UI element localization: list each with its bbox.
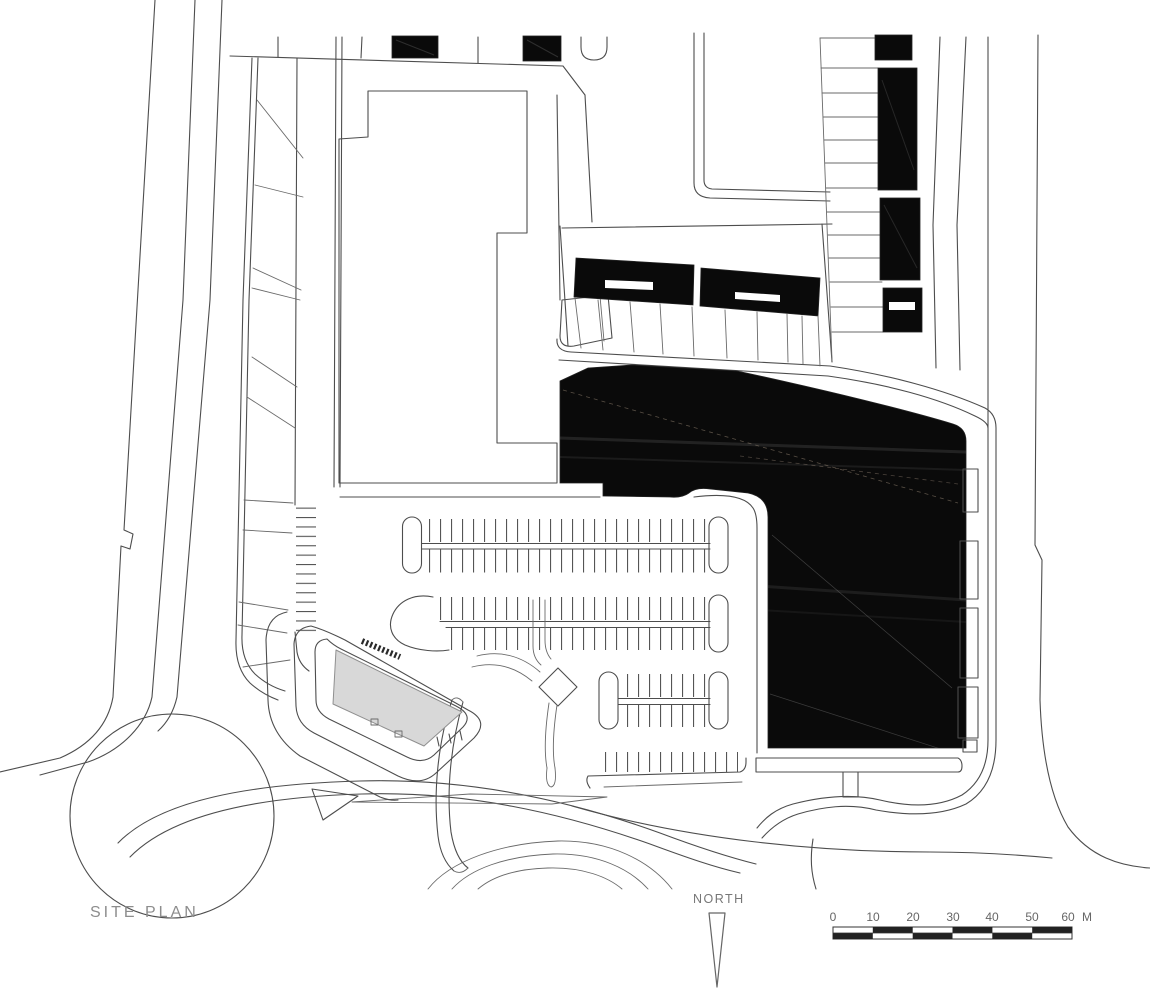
large-building-outline	[339, 91, 557, 483]
drawing-title: SITE PLAN	[90, 904, 199, 921]
north-arrow-icon	[709, 913, 725, 987]
main-building	[560, 365, 978, 797]
site-plan-sheet: SITE PLAN NORTH 0 10 20 30 40 50 60 M	[0, 0, 1150, 1000]
scale-bar-segment	[1032, 927, 1072, 933]
scale-bar-segment	[873, 927, 913, 933]
road-edge	[957, 37, 966, 370]
road-edge	[694, 33, 830, 201]
road-edge	[334, 37, 336, 487]
rowhouse-block	[880, 198, 920, 280]
parking-row	[403, 517, 729, 573]
road-edge	[158, 0, 222, 731]
scale-bar-segments	[833, 927, 1072, 939]
scale-tick-label: 40	[985, 910, 999, 924]
site-plan-drawing: SITE PLAN NORTH 0 10 20 30 40 50 60 M	[0, 0, 1150, 1000]
street-edge-buildings	[392, 36, 561, 61]
landscape-contour	[478, 868, 622, 889]
road-edge	[0, 0, 155, 772]
road-edge	[340, 37, 342, 487]
parallel-parking-stalls	[296, 506, 316, 632]
service-apron	[756, 758, 962, 797]
road-edge	[933, 37, 940, 368]
kiosk-diamond	[539, 668, 577, 706]
traffic-island	[312, 789, 358, 820]
scale-bar: 0 10 20 30 40 50 60 M	[830, 910, 1092, 939]
entrance-canopy	[362, 641, 400, 657]
scale-bar-segment	[833, 933, 873, 939]
scale-bar-segment	[913, 933, 953, 939]
parking-row	[587, 752, 746, 788]
parcel-boundary	[562, 224, 832, 228]
parcel-boundary	[557, 95, 560, 300]
parking-row	[599, 672, 728, 729]
landscape-contour	[452, 854, 648, 889]
terrace-block	[700, 268, 820, 316]
road-edge	[130, 794, 740, 873]
road-edge	[811, 839, 816, 889]
scale-unit-label: M	[1082, 910, 1092, 924]
median-sliver	[352, 794, 607, 804]
rowhouse-courtyard	[889, 302, 915, 310]
scale-tick-label: 30	[946, 910, 960, 924]
road-edge	[40, 0, 195, 775]
scale-bar-segment	[992, 933, 1032, 939]
parcel-boundary	[560, 226, 568, 346]
scale-tick-label: 10	[866, 910, 880, 924]
scale-tick-label: 60	[1061, 910, 1075, 924]
north-arrow: NORTH	[693, 892, 745, 987]
scale-tick-label: 20	[906, 910, 920, 924]
parcel-boundary	[230, 56, 585, 95]
parcel-boundary	[822, 224, 832, 362]
east-rowhouse-lots	[820, 35, 922, 360]
road-edge	[704, 33, 830, 192]
scale-tick-label: 0	[830, 910, 837, 924]
north-label: NORTH	[693, 892, 745, 906]
road-edge	[361, 37, 362, 58]
scale-tick-label: 50	[1025, 910, 1039, 924]
parcel-boundary	[585, 95, 592, 222]
scale-bar-segment	[953, 927, 993, 933]
rowhouse-block	[875, 35, 912, 60]
proposed-building-footprint	[333, 650, 462, 746]
turnaround	[581, 37, 607, 60]
parking-row	[390, 595, 728, 652]
road-edge	[1035, 35, 1150, 868]
roundabout-circle	[70, 714, 274, 918]
terrace-housing	[560, 224, 832, 366]
